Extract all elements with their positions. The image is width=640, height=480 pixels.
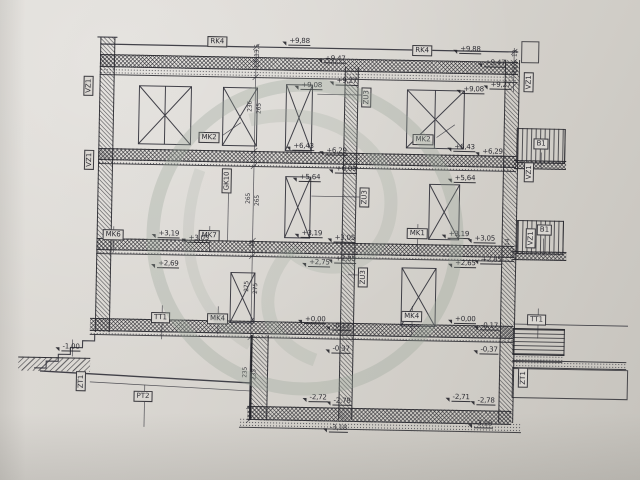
level-arrow-icon	[295, 234, 299, 238]
elevation-mark: +3,05	[181, 234, 211, 244]
elevation-mark: +9,88	[281, 36, 311, 46]
elevation-value: +9,88	[288, 37, 311, 46]
level-arrow-icon	[468, 424, 472, 428]
elevation-value: +2,69	[157, 259, 180, 268]
elevation-mark: -2,71	[445, 393, 471, 402]
level-arrow-icon	[474, 260, 478, 264]
level-arrow-icon	[448, 320, 452, 324]
level-arrow-icon	[326, 326, 330, 330]
elevation-mark: +5,64	[447, 174, 477, 184]
level-arrow-icon	[448, 179, 452, 183]
roof-chimney-block	[521, 41, 539, 63]
elevation-value: +9,27	[490, 80, 513, 89]
level-arrow-icon	[298, 320, 302, 324]
elevation-value: +0,00	[304, 315, 327, 324]
elevation-mark: +9,27	[483, 80, 513, 90]
level-arrow-icon	[330, 81, 334, 85]
component-label-vz1: VZ1	[84, 150, 94, 170]
left-exterior-wall	[95, 37, 116, 332]
elevation-mark: +6,43	[446, 143, 476, 153]
component-label-zt1: ZT1	[76, 372, 86, 392]
elevation-mark: +9,47	[317, 54, 347, 64]
elevation-mark: +9,88	[452, 45, 482, 55]
dimension-text: 14	[249, 234, 256, 252]
dimension-text: 235	[241, 363, 248, 381]
elevation-mark: -1,00	[54, 342, 80, 351]
right-exterior-wall	[500, 60, 520, 340]
level-arrow-icon	[329, 169, 333, 173]
level-arrow-icon	[323, 428, 327, 432]
level-arrow-icon	[182, 239, 186, 243]
elevation-mark: +0,00	[297, 315, 327, 325]
level-arrow-icon	[152, 234, 156, 238]
component-label-b1: B1	[537, 224, 552, 235]
elevation-value: +9,08	[300, 81, 323, 90]
component-label-zu3: ZU3	[358, 267, 368, 288]
component-label-zu3: ZU3	[359, 187, 369, 208]
elevation-mark: +3,05	[467, 234, 497, 244]
dimension-text: 236	[246, 97, 253, 115]
level-arrow-icon	[151, 264, 155, 268]
elevation-value: -2,78	[332, 397, 351, 406]
level-arrow-icon	[484, 85, 488, 89]
level-arrow-icon	[325, 349, 329, 353]
terrain-hatch	[18, 356, 90, 371]
elevation-value: +9,88	[459, 45, 482, 54]
level-arrow-icon	[302, 263, 306, 267]
elevation-value: +6,09	[335, 165, 358, 174]
photographed-blueprint: RK4RK4VZ1VZ1VZ1VZ1VZ1MK2MK2ZU3ZU3ZU3GK10…	[0, 0, 640, 480]
elevation-mark: -0,17	[325, 321, 351, 330]
component-label-vz1: VZ1	[523, 72, 533, 92]
component-label-mk6: MK6	[103, 229, 124, 240]
component-label-tt1: TT1	[151, 312, 170, 323]
elevation-mark: +9,08	[293, 81, 323, 91]
level-arrow-icon	[448, 264, 452, 268]
elevation-value: +3,05	[188, 234, 211, 243]
level-arrow-icon	[328, 238, 332, 242]
level-arrow-icon	[328, 259, 332, 263]
elevation-mark: +9,47	[477, 58, 507, 68]
elevation-value: -0,17	[332, 322, 351, 331]
level-arrow-icon	[470, 401, 474, 405]
component-label-zt1: ZT1	[518, 368, 528, 388]
elevation-value: -0,37	[331, 344, 350, 353]
elevation-mark: +6,29	[474, 147, 504, 157]
elevation-mark: +3,19	[151, 229, 181, 239]
level-arrow-icon	[473, 350, 477, 354]
level-arrow-icon	[282, 41, 286, 45]
level-arrow-icon	[442, 235, 446, 239]
elevation-value: -2,71	[452, 393, 471, 402]
elevation-value: +9,47	[324, 54, 347, 63]
component-label-pt2: PT2	[133, 391, 152, 402]
lower-balcony-slab	[512, 251, 566, 261]
level-arrow-icon	[286, 147, 290, 151]
component-label-vz1: VZ1	[524, 162, 534, 182]
elevation-mark: +9,08	[455, 85, 485, 95]
dimension-text: 13	[253, 55, 260, 73]
level-arrow-icon	[474, 326, 478, 330]
elevation-value: -3,18	[474, 419, 493, 428]
dimension-text: 265	[245, 189, 252, 207]
level-arrow-icon	[319, 151, 323, 155]
elevation-value: +2,85	[334, 255, 357, 264]
elevation-mark: +2,69	[150, 259, 180, 269]
elevation-mark: -3,18	[322, 423, 348, 432]
elevation-value: +6,43	[453, 143, 476, 152]
component-label-b1: B1	[533, 138, 548, 149]
terrace-layers	[512, 328, 565, 356]
elevation-mark: +2,85	[473, 255, 503, 265]
level-arrow-icon	[293, 178, 297, 182]
elevation-mark: -2,78	[325, 396, 351, 405]
elevation-mark: +3,05	[327, 233, 357, 243]
level-arrow-icon	[326, 401, 330, 405]
elevation-value: +3,19	[158, 229, 181, 238]
component-label-mk2: MK2	[412, 134, 433, 145]
component-label-zu3: ZU3	[361, 87, 371, 108]
elevation-value: +2,85	[480, 255, 503, 264]
dimension-text: 275	[252, 279, 259, 297]
elevation-mark: +5,64	[292, 173, 322, 183]
elevation-mark: -3,18	[467, 419, 493, 428]
elevation-value: +6,29	[481, 147, 504, 156]
upper-balcony-slab	[514, 160, 566, 170]
level-arrow-icon	[318, 59, 322, 63]
level-arrow-icon	[478, 63, 482, 67]
elevation-value: +3,19	[301, 229, 324, 238]
elevation-mark: +6,29	[318, 146, 348, 156]
elevation-mark: +2,85	[327, 254, 357, 264]
component-label-rk4: RK4	[412, 45, 432, 56]
elevation-mark: +6,09	[328, 164, 358, 174]
level-arrow-icon	[453, 50, 457, 54]
level-arrow-icon	[294, 86, 298, 90]
level-arrow-icon	[475, 152, 479, 156]
elevation-mark: -2,78	[469, 396, 495, 405]
elevation-value: -3,18	[329, 423, 348, 432]
dimension-text: 265	[254, 191, 261, 209]
dimension-text: 235	[250, 365, 257, 383]
elevation-mark: +6,43	[285, 142, 315, 152]
component-label-vz1: VZ1	[83, 76, 93, 96]
component-label-mk2: MK2	[198, 132, 219, 143]
elevation-value: -0,17	[480, 321, 499, 330]
elevation-value: +9,27	[336, 77, 359, 86]
elevation-value: -1,00	[61, 342, 80, 351]
level-arrow-icon	[456, 90, 460, 94]
elevation-value: +5,64	[299, 173, 322, 182]
component-label-mk4: MK4	[401, 311, 422, 322]
elevation-value: +3,05	[474, 234, 497, 243]
component-label-rk4: RK4	[207, 36, 227, 47]
elevation-mark: -0,37	[472, 345, 498, 354]
elevation-value: +9,47	[484, 58, 507, 67]
level-arrow-icon	[302, 398, 306, 402]
component-label-mk4: MK4	[207, 313, 228, 324]
elevation-value: -0,37	[479, 345, 498, 354]
component-label-mk1: MK1	[407, 228, 428, 239]
dimension-text: 275	[243, 277, 250, 295]
elevation-mark: -2,72	[301, 393, 327, 402]
elevation-mark: -0,17	[473, 321, 499, 330]
elevation-value: +6,43	[292, 142, 315, 151]
component-label-vz1: VZ1	[525, 228, 535, 248]
component-label-tt1: TT1	[527, 314, 546, 325]
elevation-mark: +3,19	[294, 229, 324, 239]
elevation-mark: +9,27	[329, 76, 359, 86]
level-arrow-icon	[447, 148, 451, 152]
component-label-gk10: GK10	[221, 168, 231, 193]
elevation-value: +3,05	[334, 234, 357, 243]
dimension-text: 13,5	[511, 58, 518, 76]
dimension-text: 265	[255, 99, 262, 117]
level-arrow-icon	[468, 239, 472, 243]
dimension-text: 14	[504, 233, 511, 251]
elevation-value: +5,64	[454, 174, 477, 183]
right-foundation-element	[512, 368, 629, 400]
elevation-value: +6,29	[325, 146, 348, 155]
elevation-value: -2,78	[476, 396, 495, 405]
annotations-layer: RK4RK4VZ1VZ1VZ1VZ1VZ1MK2MK2ZU3ZU3ZU3GK10…	[1, 0, 640, 10]
elevation-mark: -0,37	[324, 344, 350, 353]
section-drawing: RK4RK4VZ1VZ1VZ1VZ1VZ1MK2MK2ZU3ZU3ZU3GK10…	[0, 0, 640, 480]
level-arrow-icon	[446, 398, 450, 402]
level-arrow-icon	[55, 347, 59, 351]
